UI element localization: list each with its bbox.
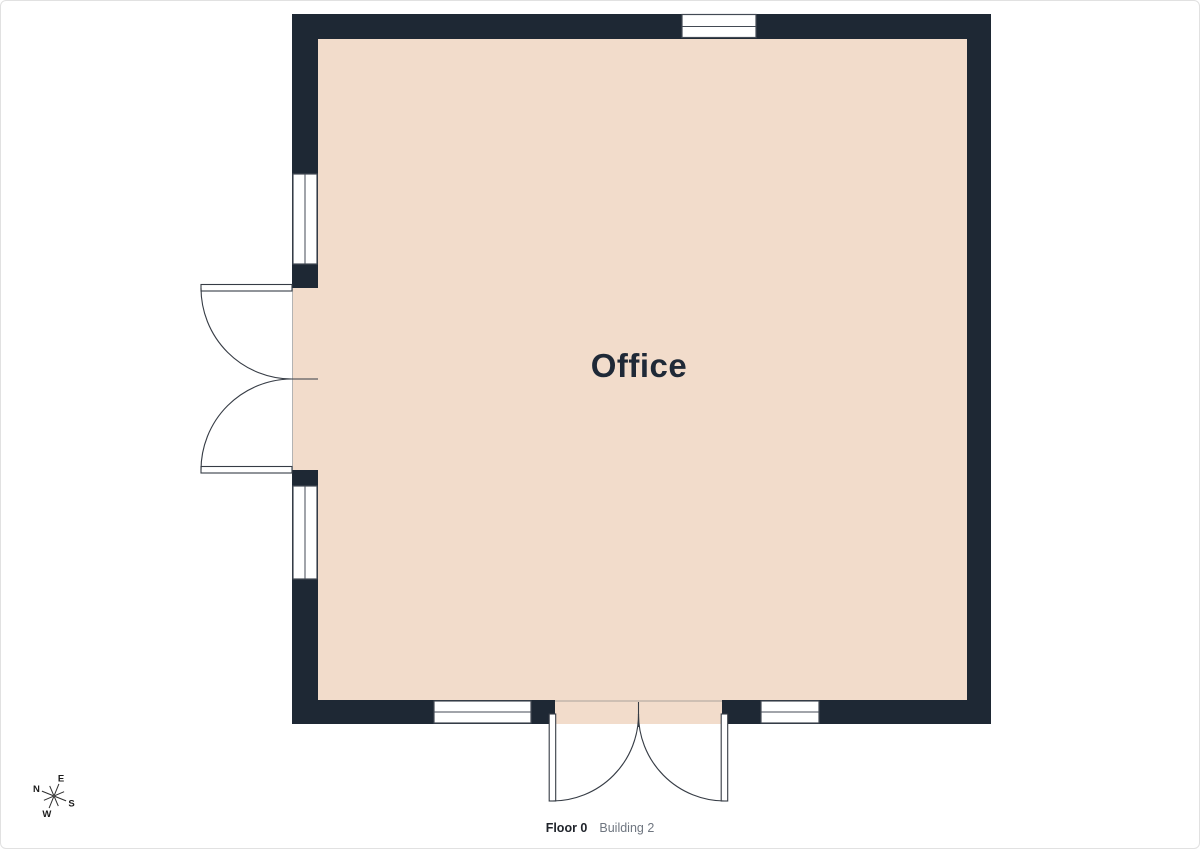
floor-caption: Floor 0Building 2 [1, 821, 1199, 836]
window-top [682, 15, 756, 38]
door-left-bottom-leaf [201, 467, 292, 474]
window-bottom-right [761, 701, 819, 723]
compass-rose: E N S W [24, 764, 88, 828]
door-bottom-right-swing-arc [638, 714, 724, 801]
floor-label: Floor 0 [546, 821, 588, 835]
building-label: Building 2 [599, 821, 654, 835]
door-bottom-left-swing-arc [553, 714, 639, 801]
wall-right [967, 14, 991, 724]
compass-label-west: W [42, 809, 51, 820]
window-bottom-left [434, 701, 531, 723]
door-left-top-swing-arc [201, 288, 292, 379]
window-left-lower [293, 486, 317, 579]
wall-top [292, 14, 991, 39]
window-left-upper [293, 174, 317, 264]
door-bottom-right-leaf [721, 714, 728, 801]
floorplan-canvas: Office E N S W Floor 0Building 2 [0, 0, 1200, 849]
compass-label-north: N [33, 784, 40, 795]
door-left-top-leaf [201, 285, 292, 292]
floor-plan: Office [1, 1, 1200, 849]
door-left-bottom-swing-arc [201, 379, 292, 470]
compass-label-south: S [68, 798, 74, 809]
compass-label-east: E [58, 774, 64, 785]
door-bottom-left-leaf [549, 714, 556, 801]
room-label: Office [591, 347, 688, 384]
compass-center-dot [53, 795, 56, 798]
